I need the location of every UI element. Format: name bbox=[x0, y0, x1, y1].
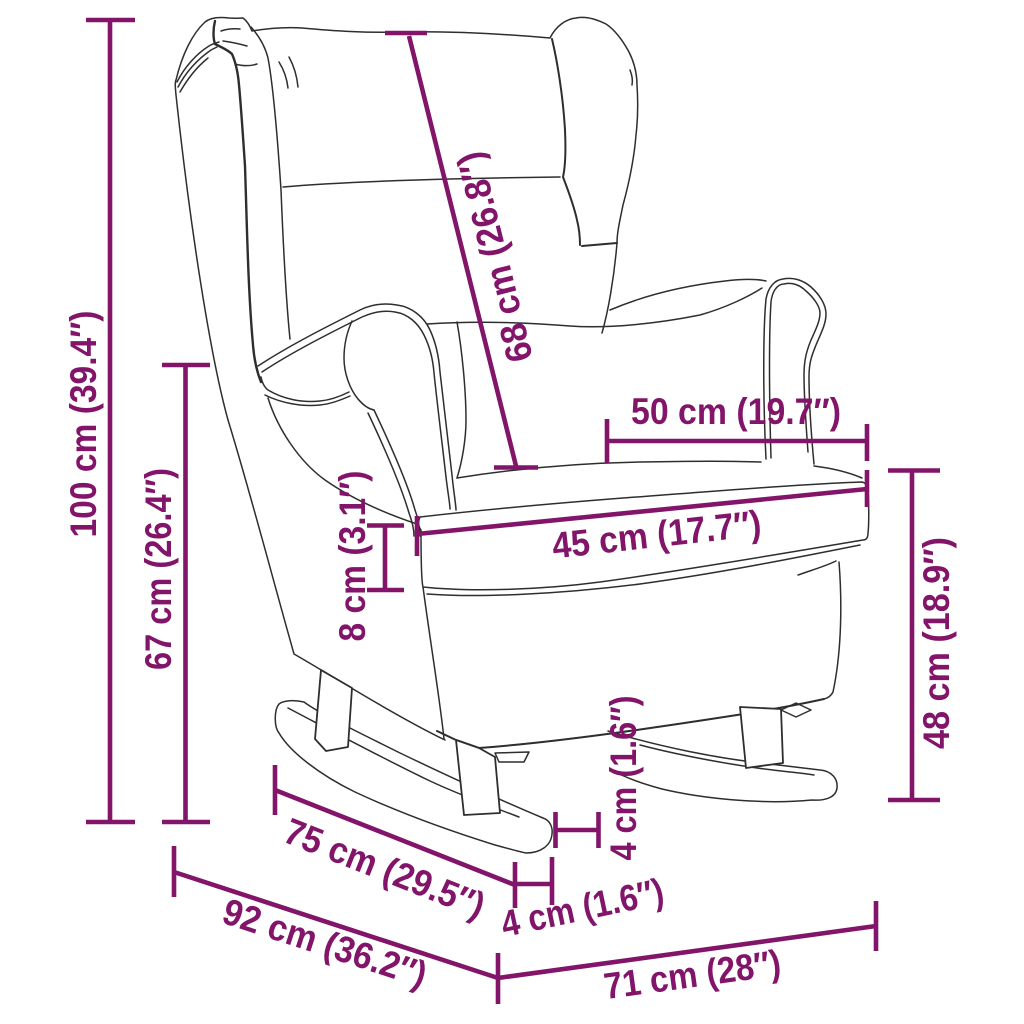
svg-text:8 cm (3.1″): 8 cm (3.1″) bbox=[332, 471, 373, 642]
svg-text:4 cm (1.6″): 4 cm (1.6″) bbox=[603, 696, 644, 861]
svg-text:48 cm (18.9″): 48 cm (18.9″) bbox=[916, 537, 957, 749]
svg-text:100 cm (39.4″): 100 cm (39.4″) bbox=[63, 311, 104, 538]
svg-text:50 cm (19.7″): 50 cm (19.7″) bbox=[631, 391, 841, 432]
svg-text:67 cm (26.4″): 67 cm (26.4″) bbox=[138, 468, 179, 670]
